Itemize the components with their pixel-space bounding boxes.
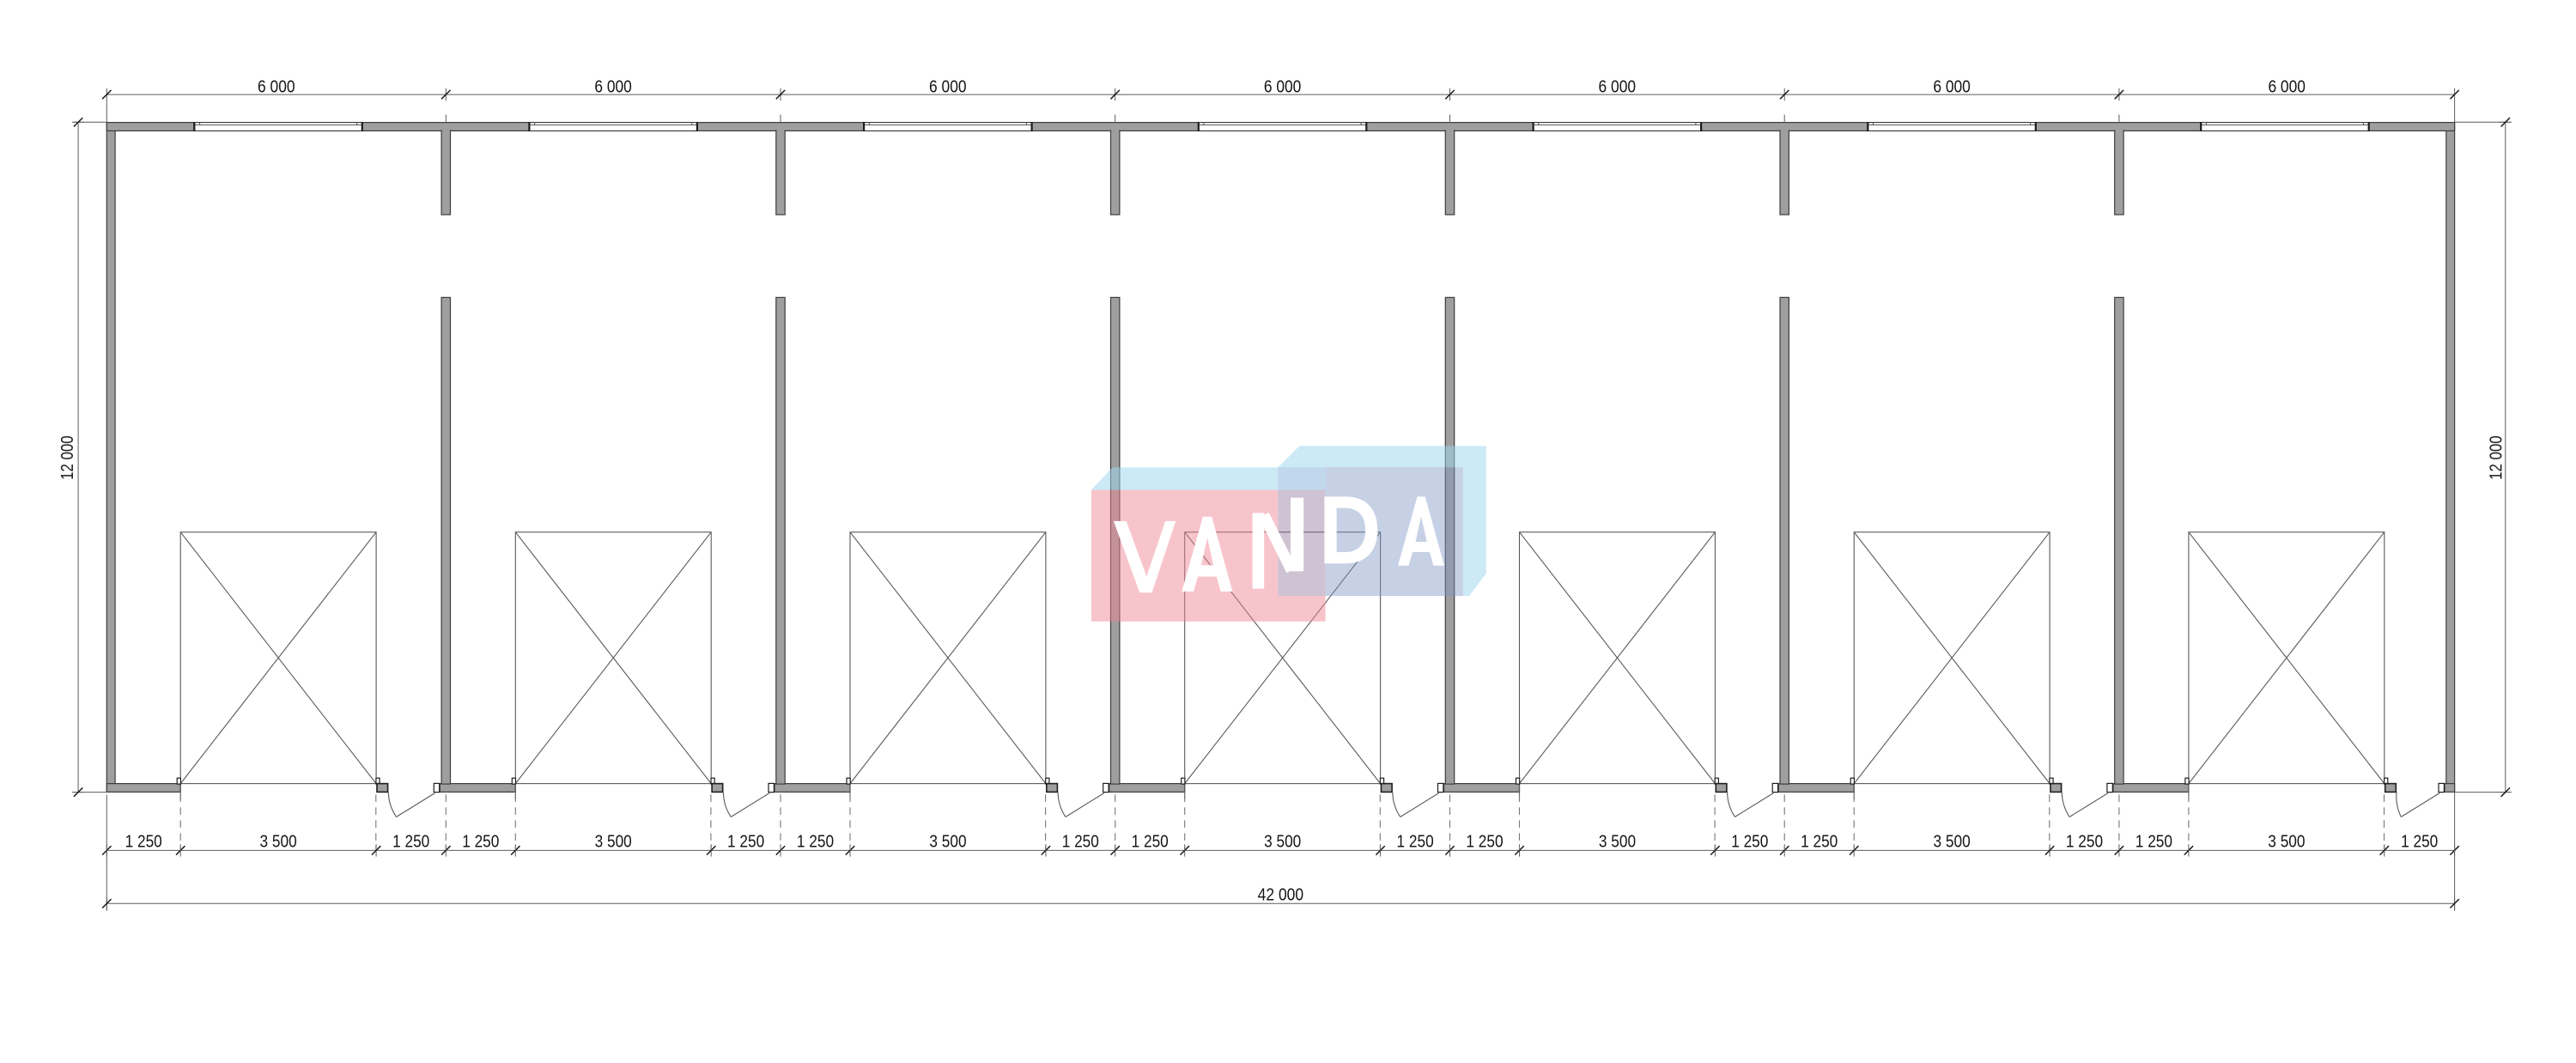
svg-text:6 000: 6 000	[2268, 76, 2306, 96]
svg-text:6 000: 6 000	[1933, 76, 1971, 96]
svg-text:3 500: 3 500	[2268, 832, 2305, 852]
svg-text:1 250: 1 250	[2136, 832, 2172, 852]
svg-text:1 250: 1 250	[392, 832, 429, 852]
svg-text:6 000: 6 000	[929, 76, 967, 96]
svg-text:1 250: 1 250	[797, 832, 834, 852]
svg-text:1 250: 1 250	[125, 832, 162, 852]
svg-text:1 250: 1 250	[2066, 832, 2103, 852]
svg-text:3 500: 3 500	[1264, 832, 1301, 852]
svg-text:42 000: 42 000	[1258, 885, 1304, 905]
svg-text:1 250: 1 250	[1801, 832, 1838, 852]
svg-text:1 250: 1 250	[1397, 832, 1434, 852]
svg-text:3 500: 3 500	[1934, 832, 1971, 852]
svg-text:6 000: 6 000	[258, 76, 295, 96]
svg-text:1 250: 1 250	[2401, 832, 2438, 852]
svg-text:6 000: 6 000	[1599, 76, 1637, 96]
svg-text:1 250: 1 250	[1466, 832, 1503, 852]
svg-text:6 000: 6 000	[1264, 76, 1302, 96]
svg-text:1 250: 1 250	[1132, 832, 1169, 852]
svg-text:1 250: 1 250	[1062, 832, 1099, 852]
svg-text:1 250: 1 250	[462, 832, 499, 852]
svg-text:3 500: 3 500	[1599, 832, 1636, 852]
svg-text:3 500: 3 500	[260, 832, 297, 852]
svg-text:3 500: 3 500	[929, 832, 966, 852]
svg-text:6 000: 6 000	[594, 76, 632, 96]
svg-text:3 500: 3 500	[595, 832, 632, 852]
svg-text:1 250: 1 250	[727, 832, 764, 852]
svg-text:12 000: 12 000	[2486, 435, 2506, 480]
svg-text:1 250: 1 250	[1731, 832, 1768, 852]
svg-text:12 000: 12 000	[58, 435, 77, 480]
